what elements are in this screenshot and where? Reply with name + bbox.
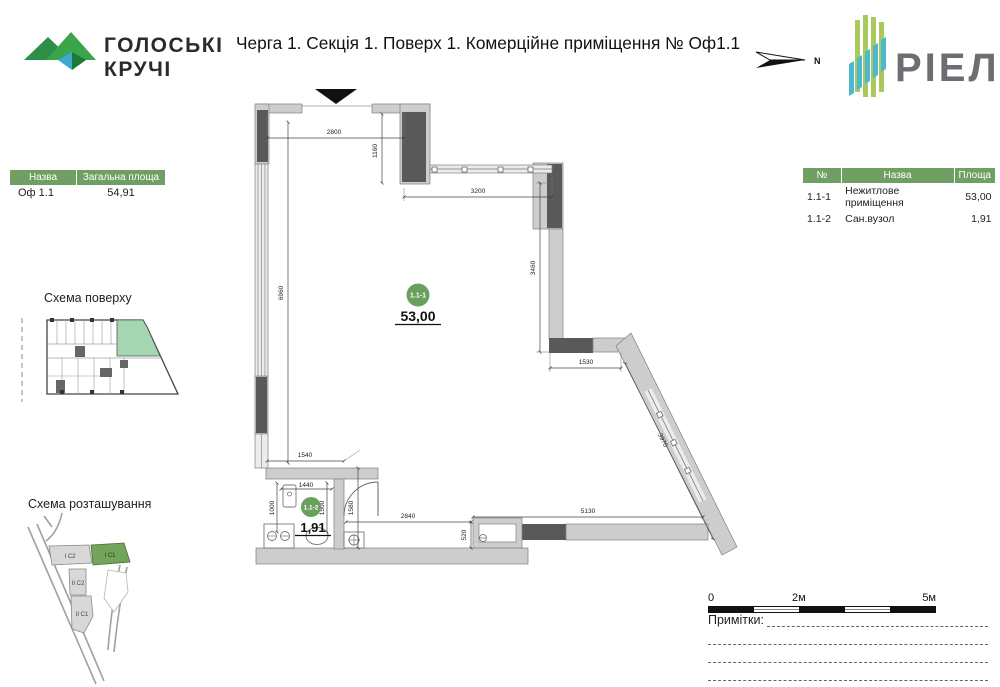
brand-line1: ГОЛОСЬКІ	[104, 34, 223, 57]
dimension-1530: 1530	[550, 353, 621, 372]
table-row: 1.1-2 Сан.вузол 1,91	[803, 211, 996, 227]
room-name: Сан.вузол	[841, 211, 954, 227]
svg-text:1540: 1540	[298, 452, 313, 459]
diagonal-window	[648, 390, 703, 501]
room-1-1-1-label: 1.1-1 53,00	[395, 284, 441, 325]
page-title: Черга 1. Секція 1. Поверх 1. Комерційне …	[236, 33, 806, 54]
north-arrow: N	[748, 42, 828, 82]
scale-5m: 5м	[922, 592, 936, 604]
notes-line	[708, 663, 988, 681]
riel-logo-text: РІЕЛ	[895, 46, 1000, 90]
svg-text:1,91: 1,91	[300, 520, 325, 535]
brand-line2: КРУЧІ	[104, 58, 172, 81]
unit-name: Оф 1.1	[10, 185, 77, 201]
mountains-icon	[24, 32, 96, 70]
page: ГОЛОСЬКІ КРУЧІ Черга 1. Секція 1. Поверх…	[0, 0, 1000, 687]
north-arrow-icon	[756, 52, 805, 60]
dimension-6960: 6960	[278, 122, 288, 463]
svg-text:1530: 1530	[579, 359, 594, 366]
site-label-1c1: І С1	[104, 553, 116, 559]
site-scheme-label: Схема розташування	[28, 497, 151, 511]
rooms-header-area: Площа	[954, 168, 996, 183]
summary-header-area: Загальна площа	[77, 170, 166, 185]
dimension-3970: 3970	[625, 363, 713, 539]
building-outline	[47, 320, 178, 394]
summary-header-name: Назва	[10, 170, 77, 185]
scale-0: 0	[708, 592, 714, 604]
riel-logo-icon	[849, 15, 886, 97]
rooms-table: № Назва Площа 1.1-1 Нежитлове приміщення…	[803, 168, 996, 227]
rooms-header-no: №	[803, 168, 841, 183]
riel-logo: РІЕЛ	[843, 8, 998, 108]
room-name: Нежитлове приміщення	[841, 183, 954, 211]
svg-text:1160: 1160	[372, 144, 379, 158]
svg-text:1.1-1: 1.1-1	[410, 293, 426, 300]
dimension-1160: 1160	[372, 114, 382, 183]
svg-text:6960: 6960	[278, 285, 285, 300]
north-label: N	[814, 56, 821, 66]
room-no: 1.1-1	[803, 183, 841, 211]
highlighted-unit	[117, 320, 160, 356]
svg-text:53,00: 53,00	[400, 308, 435, 324]
dimension-520: 520	[461, 522, 471, 548]
table-row: 1.1-1 Нежитлове приміщення 53,00	[803, 183, 996, 211]
svg-text:3200: 3200	[471, 188, 486, 195]
notes-line	[767, 615, 988, 627]
brand-logo: ГОЛОСЬКІ КРУЧІ	[14, 10, 229, 90]
notes-label: Примітки:	[708, 613, 764, 627]
svg-text:1000: 1000	[269, 500, 276, 515]
scale-2m: 2м	[792, 592, 806, 604]
dimension-5130: 5130	[473, 508, 703, 517]
site-label-2c2: ІІ С2	[72, 581, 85, 587]
room-no: 1.1-2	[803, 211, 841, 227]
svg-text:1.1-2: 1.1-2	[304, 505, 319, 512]
unit-area: 54,91	[77, 185, 166, 201]
floor-scheme-map	[15, 305, 215, 420]
site-label-1c2: І С2	[64, 554, 76, 560]
windows	[255, 164, 703, 501]
notes-line	[708, 645, 988, 663]
floor-scheme-label: Схема поверху	[44, 291, 132, 305]
room-area: 53,00	[954, 183, 996, 211]
scale-bar-labels: 0 2м 5м	[708, 592, 936, 605]
svg-text:2840: 2840	[401, 513, 416, 520]
site-label-2c1: ІІ С1	[76, 612, 89, 618]
scale-bar: 0 2м 5м	[708, 592, 936, 613]
entrance-marker	[315, 89, 357, 104]
svg-text:3460: 3460	[530, 260, 537, 275]
svg-text:2800: 2800	[327, 129, 342, 136]
niche	[473, 518, 522, 548]
rooms-header-name: Назва	[841, 168, 954, 183]
floor-plan: 2800 1160 3200 3460 6960	[238, 80, 798, 592]
table-row: Оф 1.1 54,91	[10, 185, 166, 201]
summary-table: Назва Загальна площа Оф 1.1 54,91	[10, 170, 166, 201]
dimension-2840: 2840	[346, 513, 471, 522]
svg-text:1580: 1580	[348, 500, 355, 515]
north-arrow-fill	[756, 60, 805, 68]
dimension-1540: 1540	[267, 450, 360, 461]
notes-line	[708, 627, 988, 645]
notes-block: Примітки:	[708, 613, 988, 681]
room-area: 1,91	[954, 211, 996, 227]
svg-text:5130: 5130	[581, 508, 596, 515]
site-scheme-map: І С2 І С1 ІІ С2 ІІ С1	[12, 510, 202, 685]
site-contour	[104, 570, 128, 612]
dimension-2800: 2800	[267, 114, 404, 143]
scale-bar-segments	[708, 606, 936, 613]
svg-text:520: 520	[461, 529, 468, 540]
svg-text:1440: 1440	[299, 482, 314, 489]
